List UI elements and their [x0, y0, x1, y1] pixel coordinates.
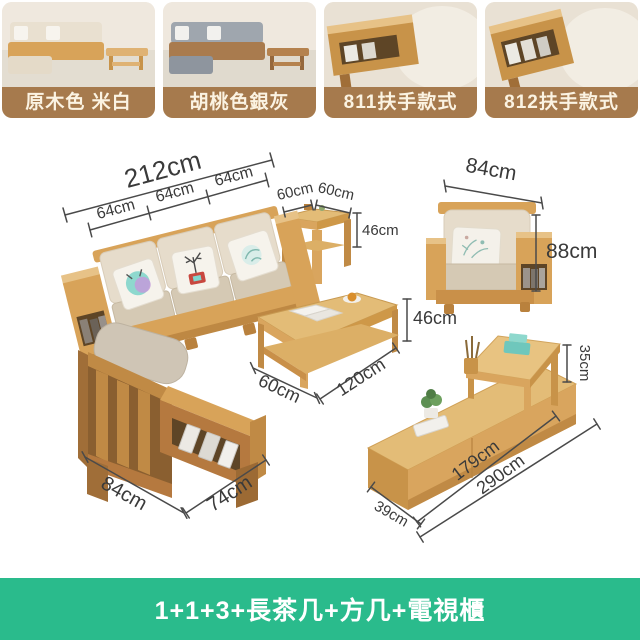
svg-text:46cm: 46cm	[413, 308, 457, 328]
svg-text:35cm: 35cm	[576, 345, 593, 382]
svg-text:60cm: 60cm	[316, 179, 356, 204]
svg-text:84cm: 84cm	[464, 154, 519, 186]
variant-label: 812扶手款式	[485, 87, 638, 118]
tissue-box	[503, 333, 531, 356]
variant-thumbnails: 原木色 米白 胡桃色銀灰	[2, 2, 638, 118]
variant-thumb-armrest-812[interactable]: 812扶手款式	[485, 2, 638, 118]
variant-thumb-armrest-811[interactable]: 811扶手款式	[324, 2, 477, 118]
thumb-scene-sofa-beige	[2, 2, 155, 87]
pillow-tree-print	[171, 245, 220, 294]
svg-text:60cm: 60cm	[255, 370, 303, 407]
svg-text:120cm: 120cm	[333, 354, 389, 400]
set-composition-banner: 1+1+3+長茶几+方几+電視櫃	[0, 578, 640, 640]
dim-sofa-total: 212cm	[63, 145, 274, 222]
thumb-scene-sofa-gray	[163, 2, 316, 87]
variant-label: 原木色 米白	[2, 87, 155, 118]
brush-pot	[464, 336, 479, 374]
set-composition-text: 1+1+3+長茶几+方几+電視櫃	[155, 591, 486, 627]
variant-label: 811扶手款式	[324, 87, 477, 118]
svg-text:88cm: 88cm	[546, 240, 597, 263]
tv-stand	[368, 333, 576, 510]
variant-thumb-walnut-gray[interactable]: 胡桃色銀灰	[163, 2, 316, 118]
svg-text:60cm: 60cm	[275, 179, 315, 204]
variant-label: 胡桃色銀灰	[163, 87, 316, 118]
armchair-front	[426, 202, 552, 314]
thumb-scene-armrest-812	[485, 2, 638, 87]
dimension-diagram: 212cm 64cm 64cm 64cm	[0, 118, 640, 578]
svg-text:46cm: 46cm	[362, 222, 399, 239]
variant-thumb-natural-beige[interactable]: 原木色 米白	[2, 2, 155, 118]
thumb-scene-armrest-811	[324, 2, 477, 87]
product-dimension-image: 原木色 米白 胡桃色銀灰	[0, 0, 640, 640]
